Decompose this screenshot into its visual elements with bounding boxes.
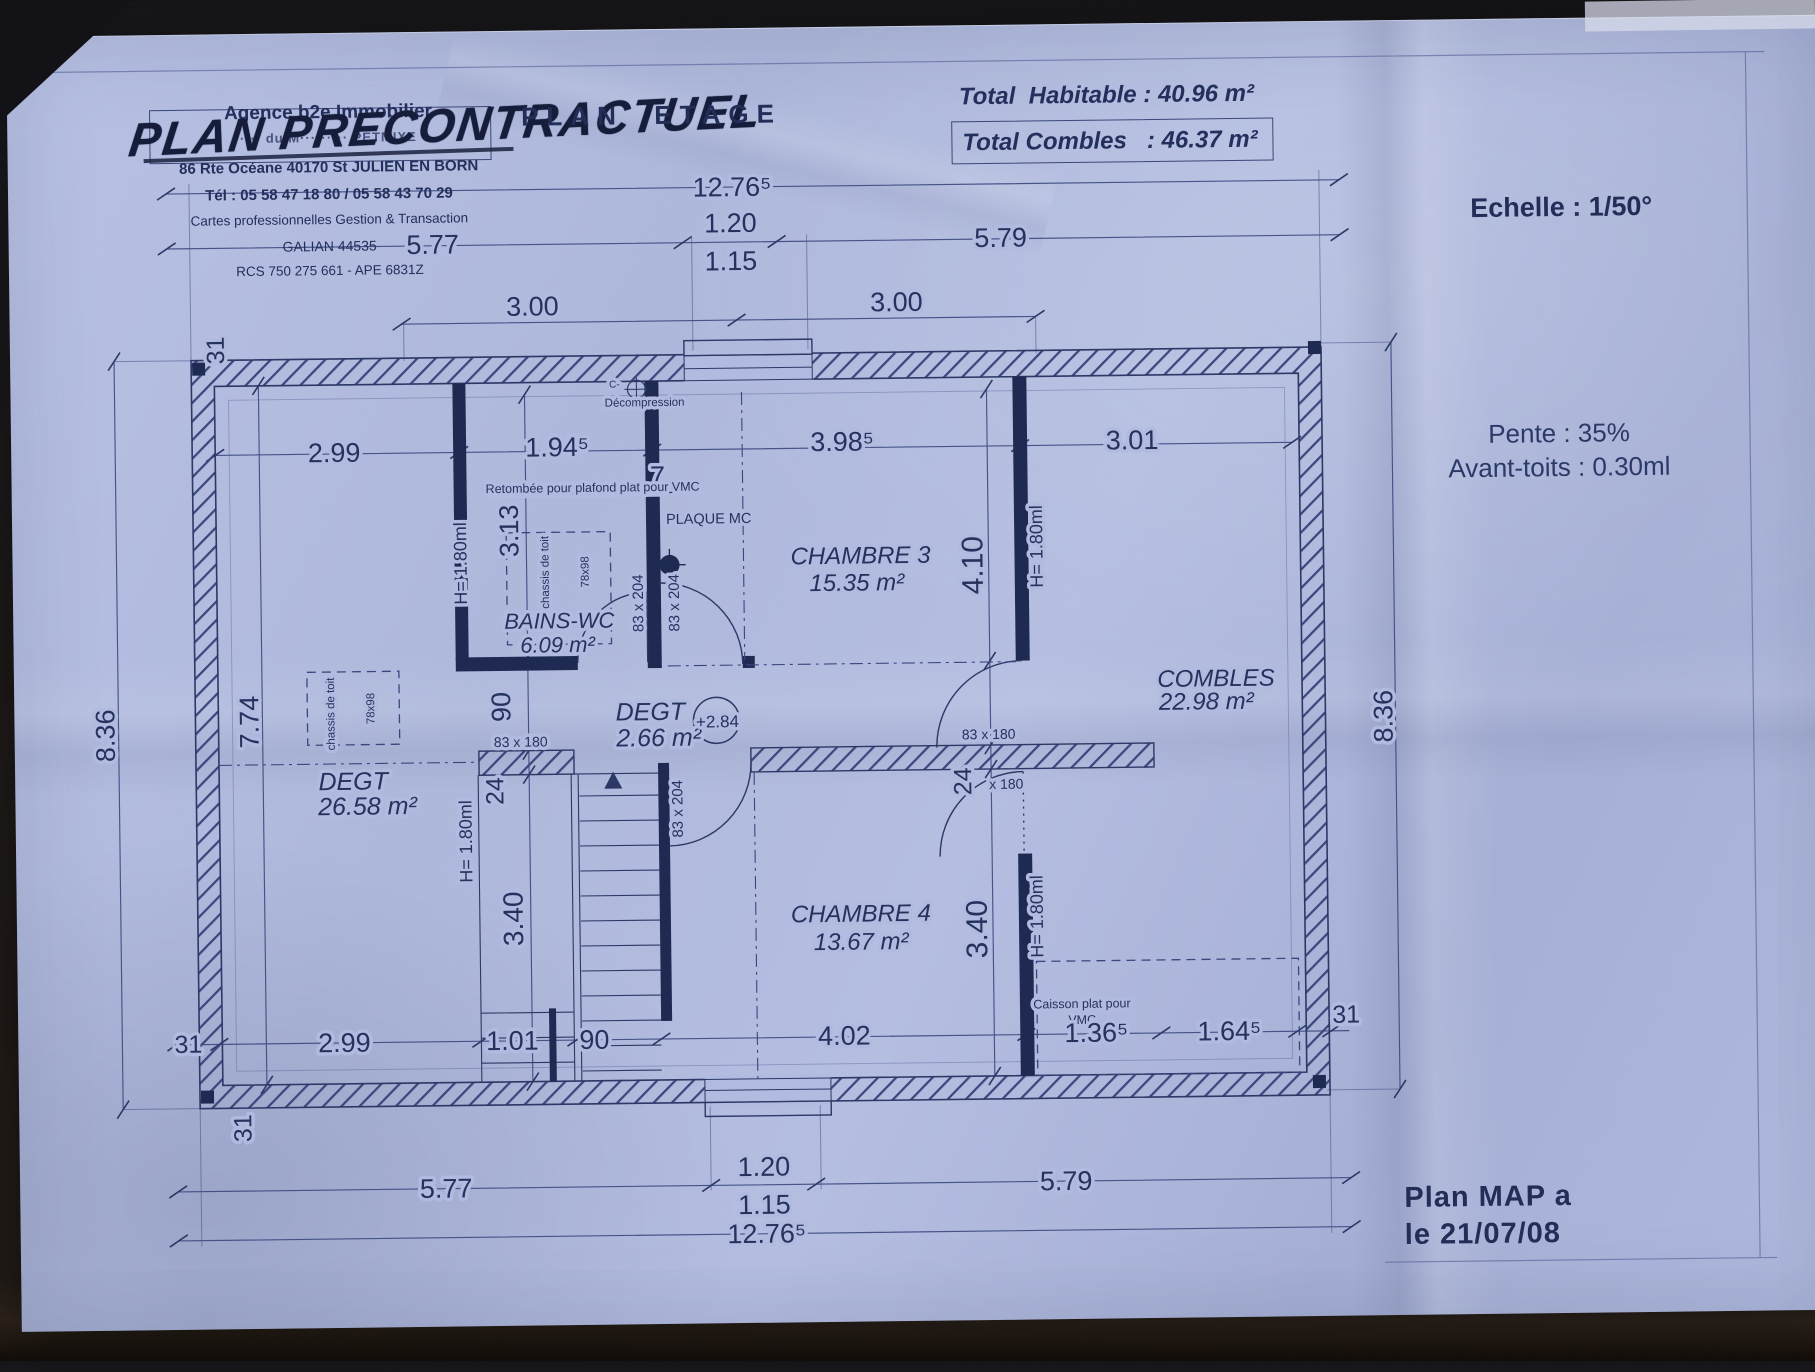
dimension-label: 3.13 <box>494 504 525 557</box>
dimension-label: 2.99 <box>318 1028 371 1059</box>
scale-note: Echelle : 1/50° <box>1470 191 1652 224</box>
dimension-label: 83 x 180 <box>494 733 548 750</box>
dimension-label: 90 <box>486 692 516 722</box>
dimension-label: 8.36 <box>1368 690 1399 743</box>
room-label: CHAMBRE 3 <box>790 542 931 571</box>
dimension-label: 1.20 <box>737 1151 790 1182</box>
room-label: 22.98 m² <box>1158 688 1255 716</box>
dimension-label: 1.94⁵ <box>525 432 589 463</box>
dimension-label: 5.77 <box>420 1173 473 1204</box>
dimension-label: 12.76⁵ <box>692 172 771 203</box>
dimension-label: 78x98 <box>579 556 591 587</box>
dimension-label: 1.36⁵ <box>1064 1017 1128 1048</box>
dimension-label: PLAQUE MC <box>666 511 752 528</box>
dimension-label: 1.20 <box>704 208 757 239</box>
room-label: DEGT <box>615 698 687 727</box>
dimension-label: x 180 <box>989 776 1024 792</box>
total-combles-box: Total Combles : 46.37 m² <box>951 117 1274 164</box>
dimension-label: 4.10 <box>956 536 990 595</box>
dimension-label: 3.40 <box>961 900 995 959</box>
dimension-label: Caisson plat pour <box>1033 996 1130 1011</box>
outer-walls <box>191 347 1330 1109</box>
plan-ref-line1: Plan MAP a <box>1404 1178 1572 1217</box>
room-label: 26.58 m² <box>317 792 419 821</box>
total-habitable: Total Habitable : 40.96 m² <box>959 80 1255 112</box>
dimension-label: 5.79 <box>974 223 1027 254</box>
agency-cards: Cartes professionnelles Gestion & Transa… <box>157 211 501 229</box>
dimension-label: 31 <box>202 336 230 364</box>
room-label: 6.09 m² <box>520 632 596 658</box>
pente-note: Pente : 35% <box>1419 414 1699 451</box>
room-label: 13.67 m² <box>814 928 910 956</box>
dimension-label: 1.64⁵ <box>1197 1016 1261 1047</box>
dimension-label: 12.76⁵ <box>727 1218 806 1249</box>
dimension-label: 3.40 <box>498 891 530 946</box>
dimension-label: 1.15 <box>704 246 757 277</box>
dimension-label: 31 <box>1332 1000 1360 1028</box>
dimension-label: +2.84 <box>696 712 739 732</box>
dimension-label: H= 1.80ml <box>450 522 471 605</box>
room-label: 2.66 m² <box>615 724 703 753</box>
agency-phone: Tél : 05 58 47 18 80 / 05 58 43 70 29 <box>157 185 501 204</box>
dimension-label: 1.01 <box>486 1026 539 1057</box>
dimension-label: 7.74 <box>234 696 265 749</box>
plan-reference: Plan MAP a le 21/07/08 <box>1404 1178 1572 1254</box>
dimension-label: H= 1.80ml <box>455 800 476 883</box>
dimension-label: chassis de toit <box>539 535 552 609</box>
dimension-label: 83 x 204 <box>669 780 687 838</box>
dimension-label: 3.01 <box>1106 425 1159 456</box>
roof-windows <box>305 523 1300 1084</box>
dimension-label: 3.98⁵ <box>810 426 874 457</box>
dimension-label: 8.36 <box>90 709 121 762</box>
dimension-label: 4.02 <box>818 1020 871 1051</box>
interior-walls <box>192 341 1330 1104</box>
dimension-label: 24 <box>481 777 509 805</box>
plan-sheet: 12.76⁵1.201.155.775.793.003.002.991.94⁵7… <box>0 0 1815 1372</box>
dimension-label: 83 x 204 <box>630 574 648 632</box>
partition-walls <box>479 743 1154 775</box>
plan-ref-line2: le 21/07/08 <box>1405 1215 1573 1254</box>
chassis-de-toit-left <box>307 671 400 745</box>
room-label: 15.35 m² <box>809 569 905 597</box>
dimension-label: 1.15 <box>738 1189 791 1220</box>
avant-toits-note: Avant-toits : 0.30ml <box>1419 448 1699 485</box>
dimension-label: 31 <box>229 1114 257 1142</box>
dimension-label: 78x98 <box>365 693 377 724</box>
symbols <box>484 376 739 746</box>
dimension-label: 2.99 <box>308 438 361 469</box>
agency-galian: GALIAN 44535 <box>158 236 502 254</box>
dimension-label: C- <box>609 379 620 390</box>
dimension-label: 5.79 <box>1040 1166 1093 1197</box>
dimension-label: 3.00 <box>506 291 559 322</box>
blueprint-photo: 12.76⁵1.201.155.775.793.003.002.991.94⁵7… <box>0 0 1815 1361</box>
dimension-label: 3.00 <box>870 287 923 318</box>
dimension-label: 90 <box>579 1025 609 1055</box>
dimension-label: 83 x 204 <box>666 574 684 632</box>
dimension-label: H= 1.80ml <box>1026 505 1047 588</box>
dimension-label: 83 x 180 <box>962 726 1016 743</box>
total-combles: Total Combles : 46.37 m² <box>962 126 1264 158</box>
dimension-label: chassis de toit <box>325 677 338 751</box>
page-title: PLAN ETAGE <box>521 98 782 132</box>
roof-notes: Pente : 35% Avant-toits : 0.30ml <box>1419 414 1700 485</box>
dimension-label: H= 1.80ml <box>1026 875 1047 958</box>
room-label: CHAMBRE 4 <box>791 900 931 929</box>
dimension-label: 31 <box>174 1031 202 1059</box>
room-label: BAINS-WC <box>504 608 614 634</box>
dimension-label: 24 <box>949 767 977 795</box>
dimension-label: Décompression <box>605 397 685 410</box>
dimension-label: Retombée pour plafond plat pour VMC <box>486 480 700 497</box>
